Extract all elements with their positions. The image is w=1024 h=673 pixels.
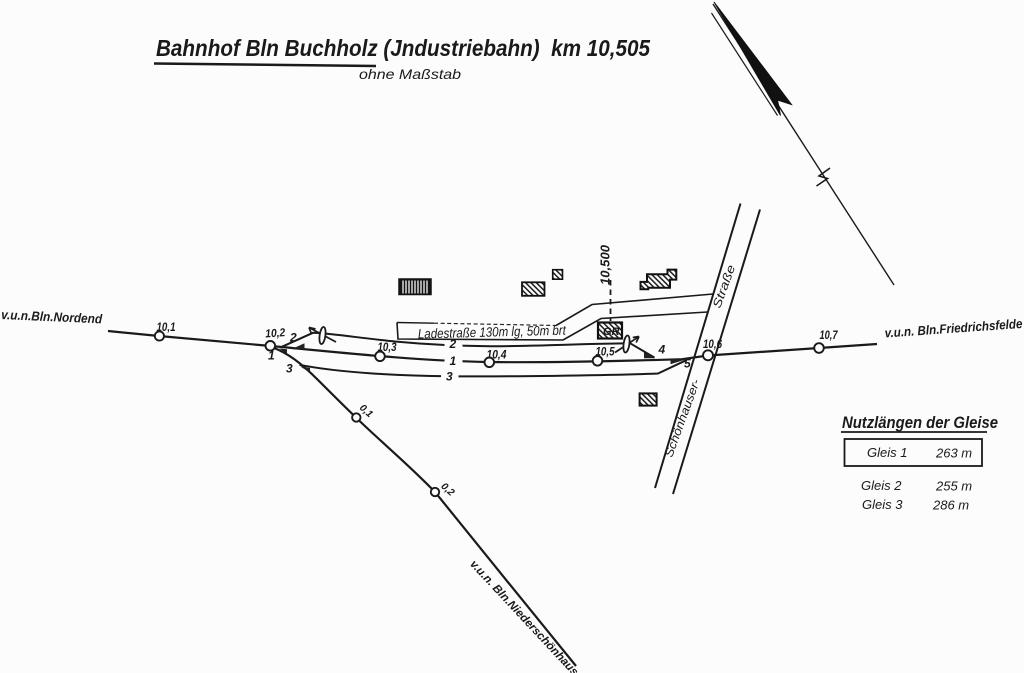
svg-text:ohne Maßstab: ohne Maßstab xyxy=(359,66,461,82)
svg-text:GR: GR xyxy=(603,326,620,338)
svg-text:263 m: 263 m xyxy=(935,446,972,461)
svg-text:v.u.n. Bln.Niederschönhaus.: v.u.n. Bln.Niederschönhaus. xyxy=(467,558,582,673)
svg-text:Gleis 3: Gleis 3 xyxy=(862,497,903,512)
svg-text:3: 3 xyxy=(446,370,453,384)
svg-text:10,7: 10,7 xyxy=(820,330,838,342)
svg-text:Nutzlängen der Gleise: Nutzlängen der Gleise xyxy=(842,413,998,432)
svg-text:1: 1 xyxy=(268,349,275,363)
svg-text:10,6: 10,6 xyxy=(703,339,723,351)
svg-text:v.u.n. Bln.Friedrichsfelde: v.u.n. Bln.Friedrichsfelde xyxy=(884,316,1023,341)
svg-text:Ladestraße 130m lg, 50m brt: Ladestraße 130m lg, 50m brt xyxy=(418,323,567,342)
svg-text:2: 2 xyxy=(449,337,457,351)
svg-text:1: 1 xyxy=(450,354,457,368)
svg-text:3: 3 xyxy=(286,362,293,376)
svg-text:2: 2 xyxy=(289,331,297,345)
svg-text:10,1: 10,1 xyxy=(157,322,176,334)
svg-text:Gleis 1: Gleis 1 xyxy=(867,445,907,460)
svg-text:v.u.n.Bln.Nordend: v.u.n.Bln.Nordend xyxy=(1,307,104,326)
svg-text:Gleis 2: Gleis 2 xyxy=(861,478,902,493)
svg-text:10,5: 10,5 xyxy=(596,347,616,359)
svg-text:10,500: 10,500 xyxy=(599,245,613,285)
svg-text:286 m: 286 m xyxy=(932,498,969,513)
svg-text:10,4: 10,4 xyxy=(487,350,508,362)
svg-text:4: 4 xyxy=(658,343,666,357)
svg-text:Straße: Straße xyxy=(710,263,739,310)
svg-text:Bahnhof Bln Buchholz (Jndustri: Bahnhof Bln Buchholz (Jndustriebahn) km … xyxy=(156,35,651,61)
svg-text:10,2: 10,2 xyxy=(265,327,286,340)
svg-text:5: 5 xyxy=(684,357,691,371)
svg-text:255 m: 255 m xyxy=(935,479,972,494)
svg-text:0,2: 0,2 xyxy=(438,481,456,499)
svg-text:10,3: 10,3 xyxy=(378,342,398,354)
